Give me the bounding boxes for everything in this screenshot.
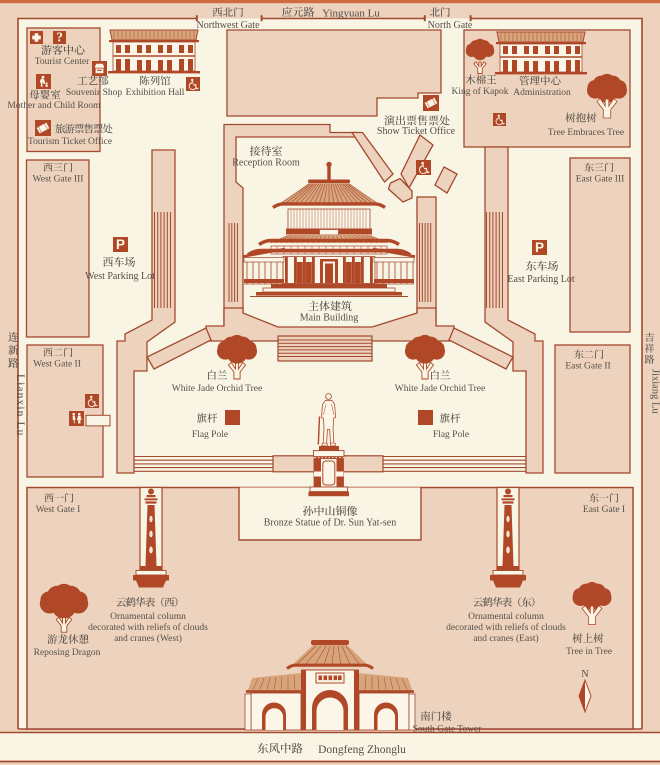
svg-text:White Jade Orchid Tree: White Jade Orchid Tree — [395, 384, 486, 394]
svg-text:East Gate III: East Gate III — [576, 175, 625, 185]
svg-text:Reposing Dragon: Reposing Dragon — [34, 648, 101, 658]
svg-text:and cranes (West): and cranes (West) — [114, 633, 182, 644]
svg-text:P: P — [535, 240, 544, 255]
svg-text:West Gate III: West Gate III — [33, 175, 84, 185]
svg-text:West Gate II: West Gate II — [33, 360, 81, 370]
svg-text:Souvenir Shop: Souvenir Shop — [66, 88, 122, 98]
svg-text:King of Kapok: King of Kapok — [452, 86, 509, 97]
svg-text:Main Building: Main Building — [300, 313, 359, 324]
svg-text:Bronze Statue of Dr. Sun Yat-s: Bronze Statue of Dr. Sun Yat-sen — [264, 518, 397, 529]
svg-text:Tourism Ticket Office: Tourism Ticket Office — [28, 136, 112, 147]
svg-text:Show Ticket Office: Show Ticket Office — [377, 126, 456, 137]
svg-text:Yingyuan Lu: Yingyuan Lu — [322, 8, 380, 20]
svg-text:East Gate II: East Gate II — [565, 362, 610, 372]
svg-text:?: ? — [56, 29, 63, 44]
svg-text:Administration: Administration — [513, 88, 571, 98]
svg-text:Tree in Tree: Tree in Tree — [566, 647, 612, 657]
svg-text:Flag Pole: Flag Pole — [192, 430, 228, 440]
svg-text:Jixiang Lu: Jixiang Lu — [650, 369, 660, 414]
svg-text:Ornamental column: Ornamental column — [468, 612, 544, 622]
svg-text:P: P — [116, 237, 125, 252]
svg-text:Mother and Child Room: Mother and Child Room — [7, 101, 101, 111]
svg-text:decorated with reliefs of clou: decorated with reliefs of clouds — [446, 622, 566, 633]
svg-text:Flag Pole: Flag Pole — [433, 430, 469, 440]
svg-text:decorated with reliefs of clou: decorated with reliefs of clouds — [88, 622, 208, 633]
svg-text:Dongfeng Zhonglu: Dongfeng Zhonglu — [318, 744, 406, 756]
svg-text:Reception Room: Reception Room — [232, 158, 300, 169]
svg-text:South Gate Tower: South Gate Tower — [413, 725, 483, 735]
svg-text:East Gate I: East Gate I — [583, 505, 625, 515]
svg-text:Exhibition Hall: Exhibition Hall — [126, 88, 185, 98]
svg-text:West Parking Lot: West Parking Lot — [85, 271, 155, 282]
svg-text:and cranes (East): and cranes (East) — [473, 633, 538, 644]
svg-text:West Gate I: West Gate I — [36, 505, 81, 515]
svg-text:White Jade Orchid Tree: White Jade Orchid Tree — [172, 384, 263, 394]
svg-text:N: N — [581, 669, 588, 680]
svg-text:Tree Embraces Tree: Tree Embraces Tree — [548, 128, 624, 138]
svg-text:East Parking Lot: East Parking Lot — [507, 274, 574, 285]
svg-text:Tourist Center: Tourist Center — [35, 57, 90, 67]
svg-text:Ornamental column: Ornamental column — [110, 612, 186, 622]
svg-text:Lianxin Lu: Lianxin Lu — [14, 374, 26, 436]
